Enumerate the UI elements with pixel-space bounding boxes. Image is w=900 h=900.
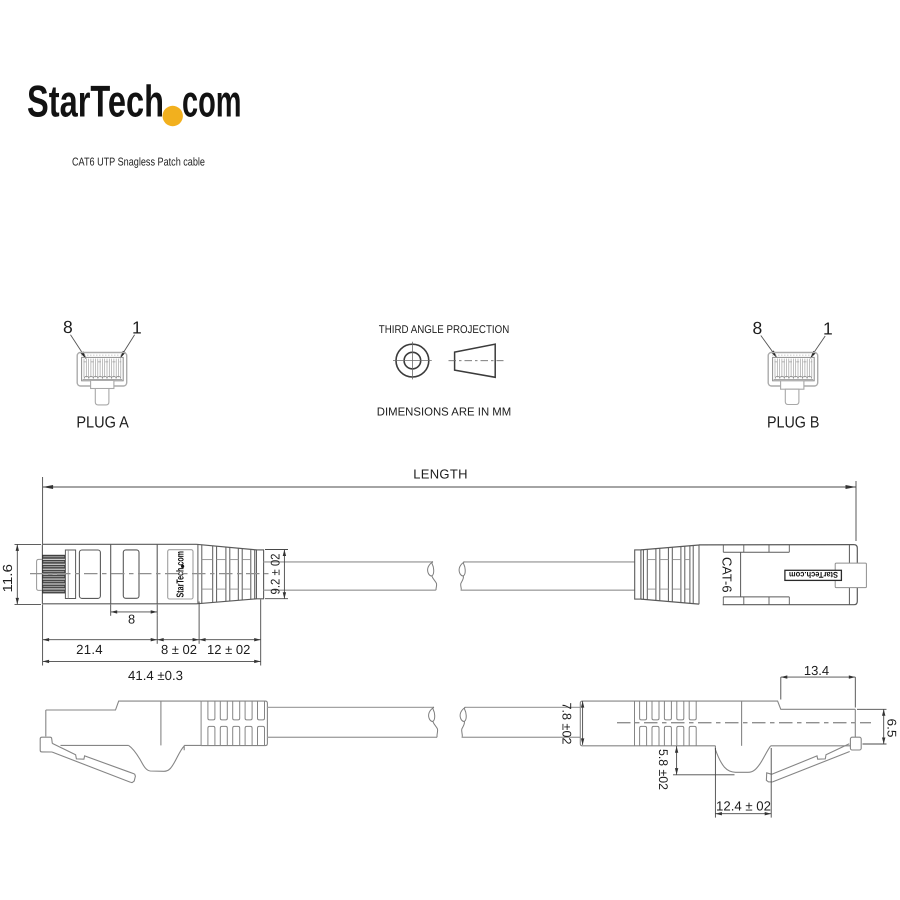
svg-text:6.5: 6.5 <box>884 719 898 738</box>
svg-text:StarTech.com: StarTech.com <box>789 570 838 580</box>
svg-text:12.4 ± 02: 12.4 ± 02 <box>716 798 771 813</box>
svg-text:CAT6 UTP Snagless Patch cable: CAT6 UTP Snagless Patch cable <box>72 157 205 169</box>
svg-text:7.8 ±02: 7.8 ±02 <box>559 703 573 745</box>
svg-text:StarTech.com: StarTech.com <box>176 551 187 598</box>
svg-text:CAT-6: CAT-6 <box>719 557 734 593</box>
svg-text:5.8 ±02: 5.8 ±02 <box>656 749 670 790</box>
svg-text:9.2 ± 02: 9.2 ± 02 <box>269 554 283 595</box>
svg-text:DIMENSIONS ARE IN MM: DIMENSIONS ARE IN MM <box>377 405 512 418</box>
svg-text:1: 1 <box>823 319 833 339</box>
svg-text:PLUG B: PLUG B <box>767 414 820 432</box>
svg-text:THIRD ANGLE PROJECTION: THIRD ANGLE PROJECTION <box>379 324 510 336</box>
svg-text:1: 1 <box>132 318 142 338</box>
svg-text:13.4: 13.4 <box>804 663 829 678</box>
svg-text:8: 8 <box>753 318 763 338</box>
svg-text:8: 8 <box>63 317 73 337</box>
svg-text:11.6: 11.6 <box>0 564 15 593</box>
svg-text:12 ± 02: 12 ± 02 <box>207 642 250 657</box>
svg-text:com: com <box>182 78 242 127</box>
svg-text:8: 8 <box>128 612 135 627</box>
svg-text:StarTech: StarTech <box>27 78 164 127</box>
svg-text:21.4: 21.4 <box>76 642 103 657</box>
svg-text:PLUG A: PLUG A <box>76 413 129 431</box>
svg-text:LENGTH: LENGTH <box>413 467 468 482</box>
svg-text:8 ± 02: 8 ± 02 <box>161 642 197 657</box>
svg-text:41.4 ±0.3: 41.4 ±0.3 <box>128 668 183 683</box>
